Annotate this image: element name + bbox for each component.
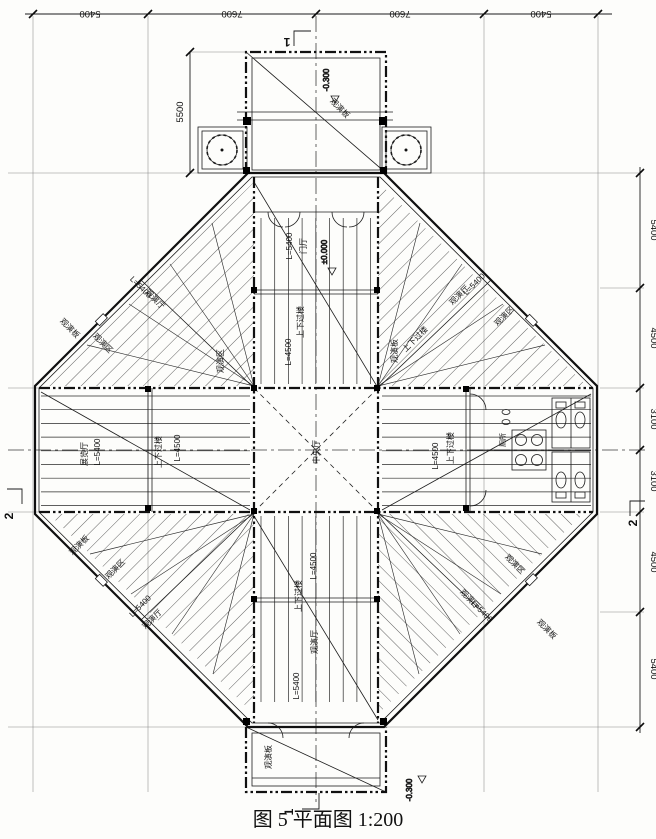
section-2-left: 2 — [2, 512, 16, 519]
level-minus-bottom: -0.300 — [405, 778, 414, 801]
label-viewing-platform-north-porch: 观演板 — [328, 96, 352, 120]
north-porch — [237, 52, 393, 173]
label-viewing-platform-nw: 观演板 — [58, 316, 82, 340]
dim-right-4: 3100 — [648, 470, 656, 491]
section-1-top: 1 — [283, 35, 290, 49]
dimension-porch: 5500 — [175, 48, 194, 177]
toilet-room — [470, 394, 591, 506]
dimension-top: 5400 7600 7600 5400 — [25, 8, 612, 19]
level-markers: ±0.000 -0.300 -0.300 — [320, 68, 426, 801]
label-stair-south-len: L=4500 — [309, 552, 318, 579]
label-viewing-hall-south: 观演厅 — [309, 630, 319, 654]
north-hall-lines — [261, 218, 371, 384]
label-exhibition-hall: 展览厅 — [79, 442, 89, 466]
figure-caption: 图 5 平面图 1:200 — [253, 809, 404, 831]
label-stair-west: 上下过楼 — [153, 436, 163, 468]
dim-top-3: 7600 — [389, 8, 410, 19]
label-entrance-hall: 门厅 — [298, 238, 308, 254]
dim-top-1: 5400 — [79, 8, 100, 19]
dim-right-1: 5400 — [648, 219, 656, 240]
label-viewing-platform-south-porch: 观演板 — [263, 745, 273, 769]
label-exhibition-hall-len: L=5400 — [93, 438, 102, 465]
dim-right-2: 4500 — [648, 327, 656, 348]
section-2-right: 2 — [626, 519, 640, 526]
tree-planter-right — [382, 127, 431, 173]
label-entrance-hall-len: L=5400 — [285, 232, 294, 259]
label-central-hall: 中央厅 — [311, 440, 321, 464]
dim-porch-depth: 5500 — [175, 101, 186, 122]
label-toilet: 厕所 — [498, 433, 507, 447]
label-viewing-area-nw-2: 观演区 — [215, 349, 225, 373]
dim-right-3: 3100 — [648, 408, 656, 429]
label-viewing-hall-south-len: L=5400 — [292, 672, 301, 699]
level-minus-top: -0.300 — [322, 68, 331, 91]
dim-top-2: 7600 — [221, 8, 242, 19]
label-viewing-platform-se: 观演板 — [535, 617, 559, 641]
label-stair-east: 上下过楼 — [445, 432, 455, 464]
south-hall-lines — [261, 516, 371, 702]
label-stair-west-len: L=4500 — [173, 434, 182, 461]
dimension-right: 5400 4500 3100 3100 4500 5400 — [636, 167, 656, 733]
tree-planter-left — [198, 127, 247, 173]
level-zero: ±0.000 — [320, 239, 329, 264]
label-stair-north: 上下过楼 — [295, 306, 305, 338]
label-stair-south: 上下过楼 — [293, 580, 303, 612]
drawing-sheet: 5400 7600 7600 5400 5400 4500 3100 3100 … — [0, 0, 656, 839]
label-stair-east-len: L=4500 — [431, 442, 440, 469]
label-viewing-platform-ne: 观演板 — [389, 339, 399, 363]
grid-lines — [8, 16, 644, 792]
dim-right-6: 5400 — [648, 658, 656, 679]
dim-top-4: 5400 — [530, 8, 551, 19]
floor-plan-svg: 5400 7600 7600 5400 5400 4500 3100 3100 … — [0, 0, 656, 839]
dim-right-5: 4500 — [648, 551, 656, 572]
label-stair-north-len: L=4500 — [284, 338, 293, 365]
viewing-hall-hatch-ne — [378, 182, 587, 386]
